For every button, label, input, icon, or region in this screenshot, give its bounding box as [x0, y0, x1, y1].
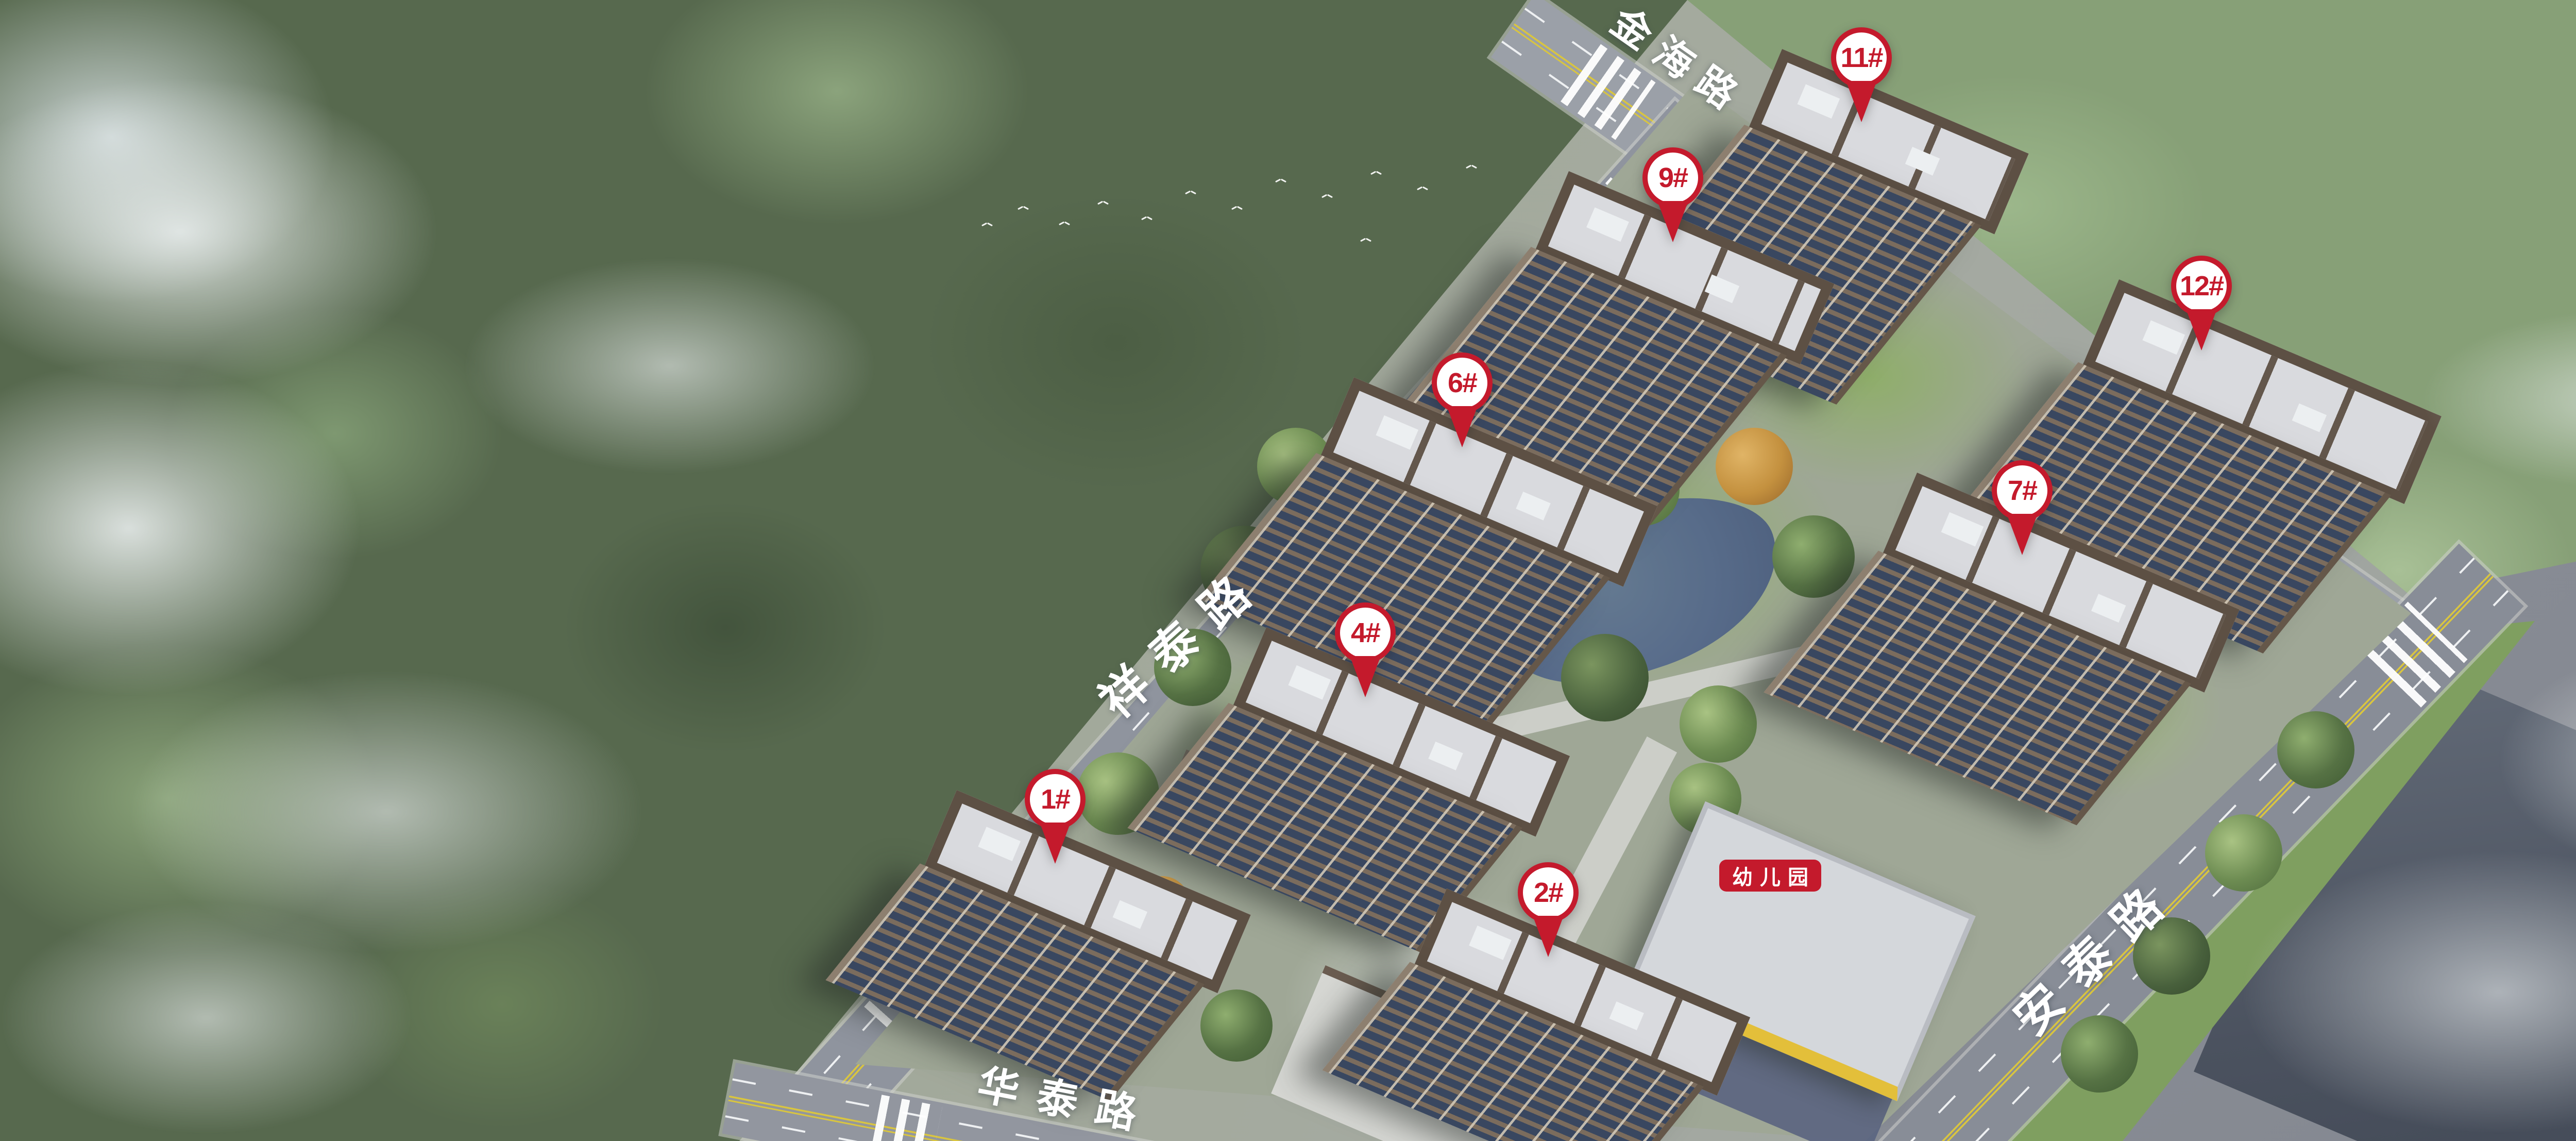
pin-tail	[2186, 309, 2217, 350]
bird-icon	[1370, 170, 1382, 175]
building-number-label: 6#	[1448, 367, 1477, 399]
bird-icon	[1466, 164, 1477, 169]
bird-icon	[1141, 215, 1153, 221]
marker-pin-6[interactable]: 6#	[1432, 353, 1493, 447]
building-number-label: 2#	[1534, 877, 1563, 909]
bird-icon	[981, 222, 993, 227]
bird-icon	[1321, 193, 1333, 198]
tree	[1680, 685, 1757, 763]
pin-tail	[1040, 823, 1071, 864]
marker-pin-11[interactable]: 11#	[1831, 27, 1892, 122]
pin-tail	[1846, 81, 1877, 122]
building-number-label: 7#	[2008, 475, 2037, 507]
pin-tail	[2007, 514, 2038, 555]
bird-icon	[1360, 237, 1371, 242]
location-pin-icon: 12#	[2171, 256, 2232, 316]
bird-icon	[1018, 205, 1029, 210]
bird-icon	[1231, 205, 1243, 210]
kindergarten-badge[interactable]: 幼儿园	[1719, 860, 1821, 892]
marker-pin-12[interactable]: 12#	[2171, 256, 2232, 350]
pin-tail	[1657, 201, 1688, 242]
building-number-label: 1#	[1041, 783, 1070, 815]
building-number-label: 11#	[1840, 42, 1882, 74]
location-pin-icon: 6#	[1432, 353, 1493, 413]
tree	[1772, 515, 1855, 598]
pin-tail	[1350, 656, 1381, 697]
building-number-label: 4#	[1351, 617, 1380, 649]
bird-icon	[1097, 200, 1109, 205]
location-pin-icon: 9#	[1642, 147, 1703, 208]
mist-cloud	[464, 258, 876, 474]
mist-cloud	[0, 902, 412, 1134]
tree	[2277, 711, 2354, 788]
marker-pin-9[interactable]: 9#	[1642, 147, 1703, 242]
marker-pin-2[interactable]: 2#	[1518, 862, 1579, 957]
bird-icon	[1185, 190, 1196, 195]
marker-pin-7[interactable]: 7#	[1992, 460, 2053, 555]
bird-icon	[1275, 178, 1286, 183]
location-pin-icon: 2#	[1518, 862, 1579, 923]
bird-icon	[1417, 186, 1428, 191]
aerial-rendering: 1# 2# 4# 6# 7# 9# 11#	[0, 0, 2576, 1141]
crosswalk	[869, 1095, 942, 1141]
bird-icon	[1059, 221, 1070, 226]
location-pin-icon: 1#	[1025, 769, 1086, 830]
marker-pin-4[interactable]: 4#	[1335, 602, 1396, 697]
building-number-label: 9#	[1658, 162, 1687, 194]
tree	[2205, 814, 2282, 892]
building-number-label: 12#	[2180, 270, 2223, 302]
pin-tail	[1533, 916, 1564, 957]
pin-tail	[1447, 406, 1478, 447]
location-pin-icon: 11#	[1831, 27, 1892, 88]
marker-pin-1[interactable]: 1#	[1025, 769, 1086, 864]
tree	[2061, 1015, 2138, 1093]
location-pin-icon: 7#	[1992, 460, 2053, 521]
location-pin-icon: 4#	[1335, 602, 1396, 663]
